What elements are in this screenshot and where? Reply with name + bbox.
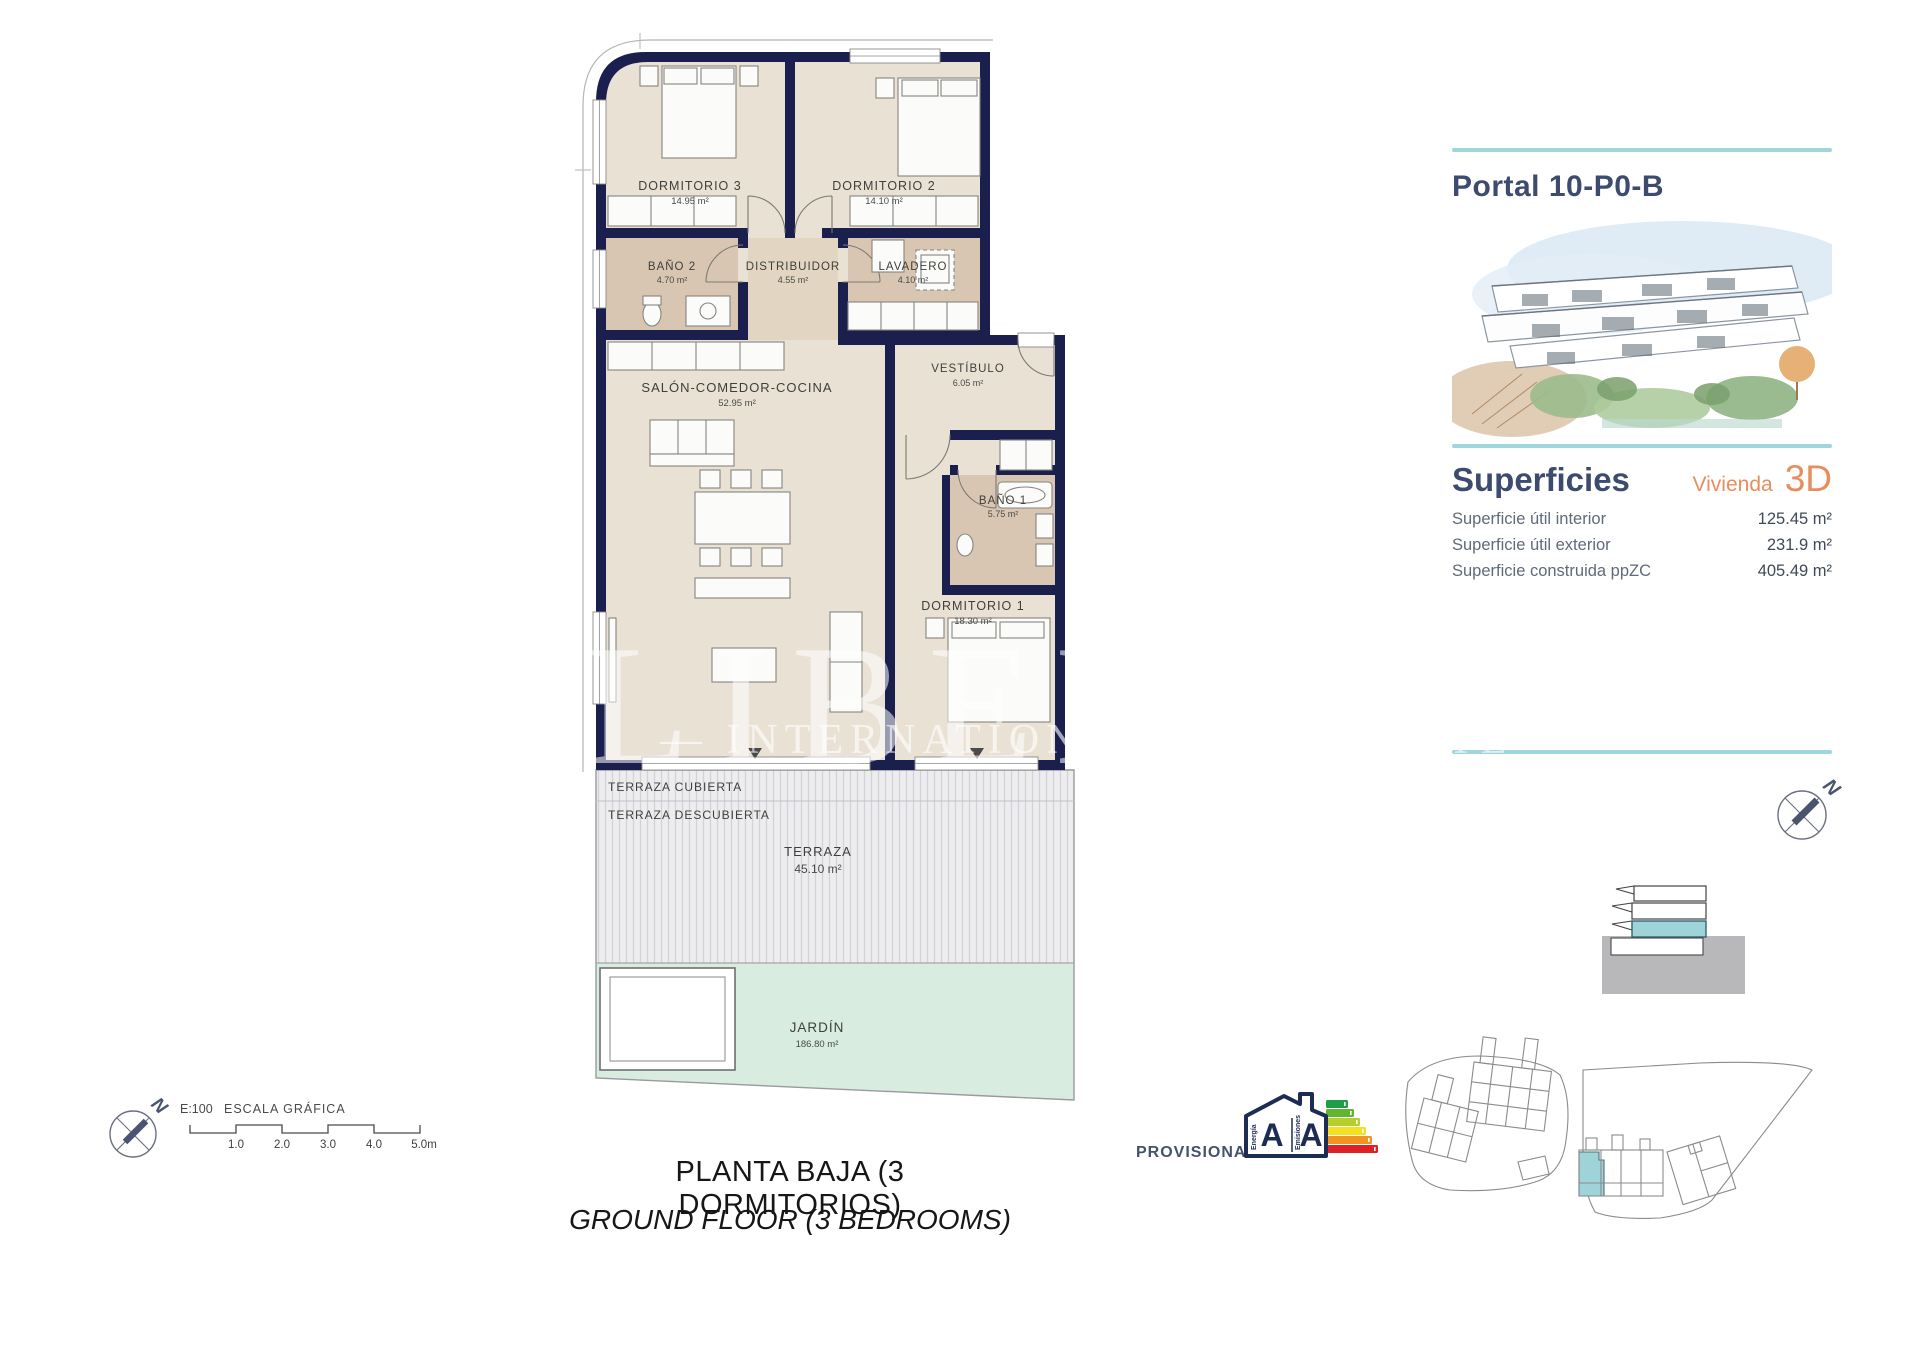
surface-value: 125.45 m² xyxy=(1758,510,1832,529)
compass-icon: N xyxy=(1778,775,1845,839)
building-rendering xyxy=(1452,214,1832,438)
garden-area-value: 186.80 m² xyxy=(796,1039,839,1050)
garden-label: JARDÍN xyxy=(790,1020,845,1035)
unit-type-code: 3D xyxy=(1785,458,1832,500)
site-small-building xyxy=(1518,1156,1549,1180)
energy-col-left-label: Energía xyxy=(1251,1124,1258,1150)
surface-row: Superficie útil interior 125.45 m² xyxy=(1452,510,1832,529)
energy-col-right-label: Emisiones xyxy=(1295,1115,1302,1150)
room-label: DORMITORIO 2 xyxy=(832,179,935,193)
scale-tick: 3.0 xyxy=(320,1139,336,1151)
terrace-covered-label: TERRAZA CUBIERTA xyxy=(608,780,742,794)
surface-label: Superficie útil interior xyxy=(1452,510,1606,529)
site-building-row xyxy=(1579,1135,1663,1196)
surface-row: Superficie útil exterior 231.9 m² xyxy=(1452,536,1832,555)
unit-type-label: Vivienda xyxy=(1693,473,1773,497)
compass-north-letter: N xyxy=(147,1094,172,1119)
room-label: DORMITORIO 3 xyxy=(638,179,741,193)
site-building-cluster-b xyxy=(1467,1032,1555,1131)
room-label: BAÑO 1 xyxy=(979,494,1027,507)
site-square-building xyxy=(1667,1136,1736,1205)
site-building-cluster-a xyxy=(1411,1073,1484,1162)
accent-divider xyxy=(1452,148,1832,152)
highlighted-floor xyxy=(1632,921,1706,937)
compass-north-letter: N xyxy=(1818,775,1844,801)
accent-divider xyxy=(1452,750,1832,754)
scale-label: ESCALA GRÁFICA xyxy=(224,1101,346,1116)
surface-row: Superficie construida ppZC 405.49 m² xyxy=(1452,562,1832,581)
energy-letter-left: A xyxy=(1260,1117,1283,1153)
accent-divider xyxy=(1452,444,1832,448)
room-area: 4.70 m² xyxy=(657,275,688,285)
surfaces-table: Superficie útil interior 125.45 m² Super… xyxy=(1452,510,1832,588)
surface-value: 231.9 m² xyxy=(1767,536,1832,555)
floorplan-page: DORMITORIO 3 14.95 m² DORMITORIO 2 14.10… xyxy=(0,0,1920,1357)
room-area: 18.30 m² xyxy=(954,616,992,627)
surfaces-title: Superficies xyxy=(1452,461,1630,499)
room-label: DORMITORIO 1 xyxy=(921,599,1024,613)
building-section-diagram xyxy=(1602,886,1745,994)
scale-bar: E:100 ESCALA GRÁFICA 1.0 2.0 3.0 4.0 5.0… xyxy=(180,1101,437,1151)
room-area: 4.55 m² xyxy=(778,275,809,285)
room-area: 14.10 m² xyxy=(865,196,903,207)
scale-tick: 1.0 xyxy=(228,1139,244,1151)
scale-tick: 4.0 xyxy=(366,1139,382,1151)
energy-letter-right: A xyxy=(1299,1117,1322,1153)
energy-status-label: PROVISIONAL xyxy=(1136,1144,1257,1161)
site-highlighted-unit xyxy=(1579,1152,1604,1196)
surface-label: Superficie útil exterior xyxy=(1452,536,1611,555)
info-panel: Portal 10-P0-B xyxy=(1452,128,1832,760)
room-label: BAÑO 2 xyxy=(648,260,696,273)
scale-tick: 5.0m xyxy=(411,1139,437,1151)
energy-house-icon: A A Energía Emisiones xyxy=(1246,1094,1378,1156)
room-area: 4.10 m² xyxy=(898,275,929,285)
room-fill-distribuidor xyxy=(748,238,838,340)
scale-tick: 2.0 xyxy=(274,1139,290,1151)
site-plan xyxy=(1406,1032,1812,1218)
room-label: VESTÍBULO xyxy=(931,362,1005,375)
room-label: DISTRIBUIDOR xyxy=(746,261,840,273)
energy-rating: PROVISIONAL A A Energía Emisiones xyxy=(1136,1094,1378,1161)
terrace-label: TERRAZA xyxy=(784,844,852,859)
room-area: 14.95 m² xyxy=(671,196,709,207)
room-label: SALÓN-COMEDOR-COCINA xyxy=(641,380,832,395)
scale-ratio: E:100 xyxy=(180,1102,213,1116)
pool xyxy=(600,968,735,1070)
room-area: 52.95 m² xyxy=(718,398,756,409)
surface-value: 405.49 m² xyxy=(1758,562,1832,581)
plan-title-en: GROUND FLOOR (3 BEDROOMS) xyxy=(560,1204,1020,1236)
terrace-uncovered-label: TERRAZA DESCUBIERTA xyxy=(608,808,770,822)
unit-title: Portal 10-P0-B xyxy=(1452,170,1664,204)
room-area: 6.05 m² xyxy=(953,378,984,388)
energy-bars xyxy=(1326,1100,1378,1153)
site-parcel-right xyxy=(1583,1062,1812,1218)
room-label: LAVADERO xyxy=(879,261,948,273)
compass-icon: N xyxy=(110,1094,172,1157)
surfaces-header: Superficies Vivienda 3D xyxy=(1452,458,1832,500)
surface-label: Superficie construida ppZC xyxy=(1452,562,1651,581)
room-area: 5.75 m² xyxy=(988,509,1019,519)
terrace-area-value: 45.10 m² xyxy=(794,862,841,876)
site-parcel-left xyxy=(1406,1056,1568,1191)
